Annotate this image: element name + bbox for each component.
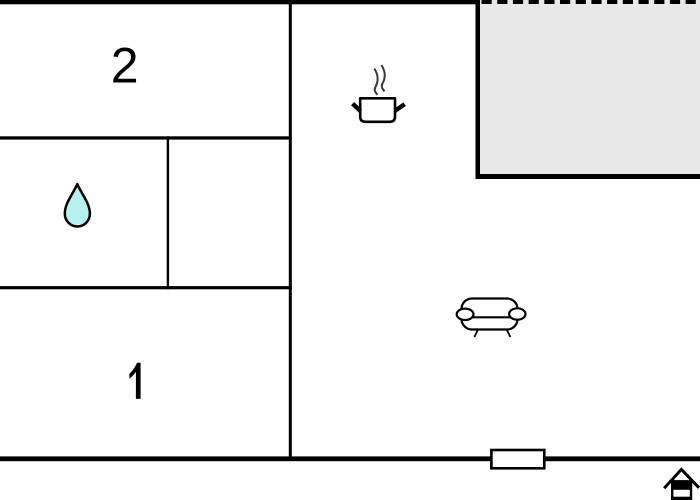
svg-text:2: 2 <box>111 38 139 94</box>
